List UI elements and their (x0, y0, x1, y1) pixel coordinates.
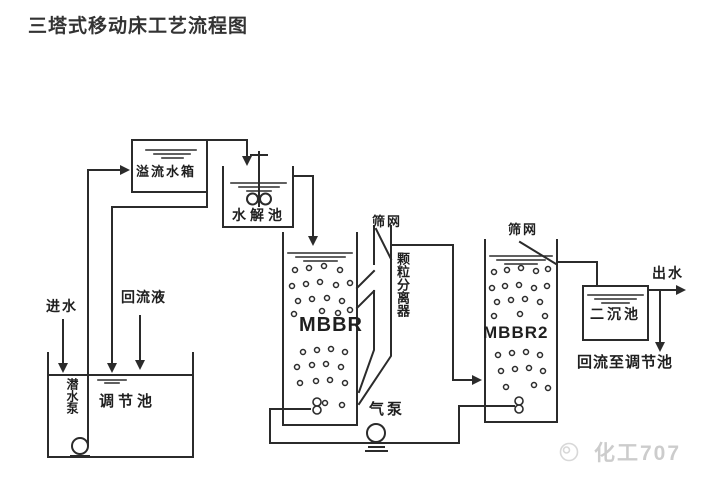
label-screen-mesh-1: 筛网 (372, 211, 402, 230)
label-mbbr1: MBBR (299, 314, 363, 337)
label-overflow-tank: 溢流水箱 (136, 161, 196, 180)
watermark-text: 化工707 (594, 437, 681, 467)
screen-mesh-line (376, 229, 391, 259)
label-hydrolysis-tank: 水解池 (232, 205, 286, 225)
label-air-pump: 气泵 (369, 398, 405, 419)
label-secondary-sedimentation-tank: 二沉池 (590, 304, 641, 324)
label-influent: 进水 (46, 296, 78, 316)
label-screen-mesh-2: 筛网 (508, 219, 538, 238)
label-regulating-tank: 调节池 (99, 390, 156, 411)
label-return-liquid: 回流液 (121, 287, 166, 307)
label-return-to-regulating-tank: 回流至调节池 (577, 351, 673, 372)
label-effluent: 出水 (652, 263, 684, 283)
air-pump-icon (366, 424, 387, 451)
label-particle-separator: 颗粒分离器 (393, 252, 412, 317)
label-submersible-pump: 潜水泵 (64, 378, 81, 414)
submersible-pump-icon (71, 438, 89, 456)
huagong707-logo-icon (556, 438, 582, 464)
stirrer-icon (247, 152, 271, 206)
label-mbbr2: MBBR2 (483, 323, 548, 343)
article-image: 三塔式移动床工艺流程图 (0, 0, 725, 483)
